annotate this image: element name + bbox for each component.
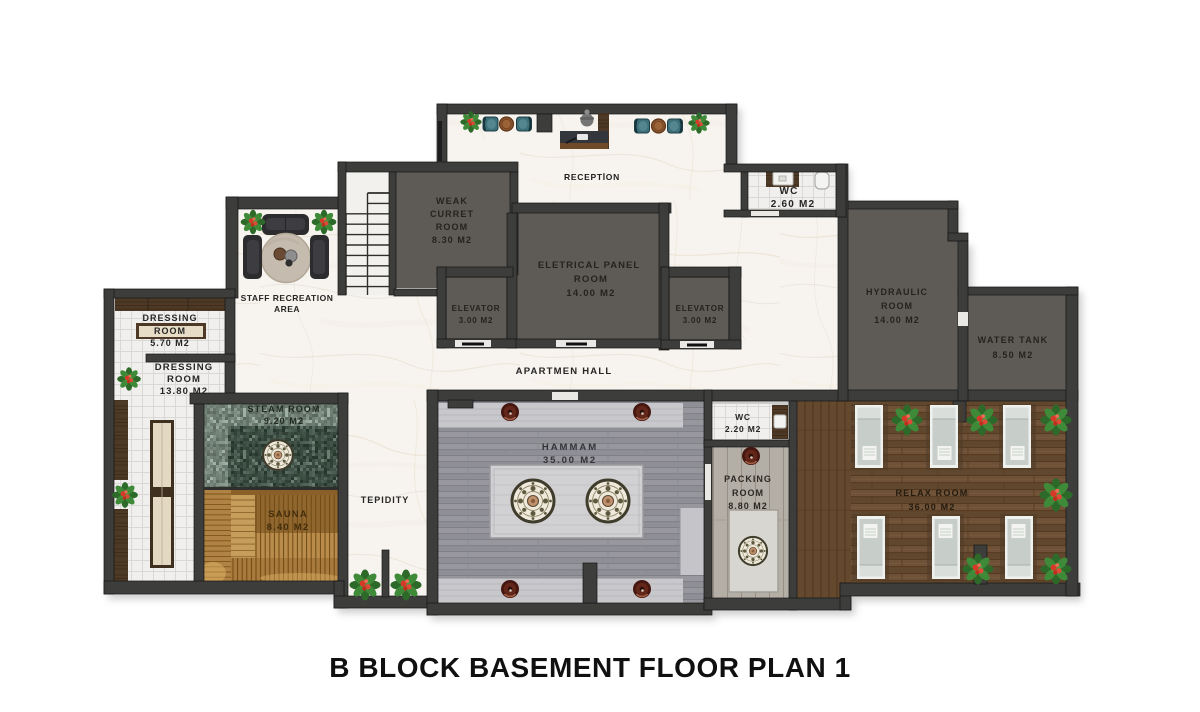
svg-text:RELAX ROOM: RELAX ROOM <box>895 488 968 498</box>
svg-text:8.30 M2: 8.30 M2 <box>432 235 472 245</box>
svg-text:HAMMAM: HAMMAM <box>542 442 598 453</box>
svg-text:WC: WC <box>735 412 751 422</box>
svg-text:5.70 M2: 5.70 M2 <box>150 338 190 348</box>
svg-text:8.40 M2: 8.40 M2 <box>267 522 310 533</box>
svg-text:9.20 M2: 9.20 M2 <box>264 416 304 426</box>
svg-text:35.00 M2: 35.00 M2 <box>543 455 597 466</box>
svg-text:2.60 M2: 2.60 M2 <box>771 199 816 210</box>
svg-text:ROOM: ROOM <box>881 301 913 311</box>
svg-text:ROOM: ROOM <box>167 374 201 385</box>
svg-text:13.80 M2: 13.80 M2 <box>160 386 208 397</box>
svg-text:WATER TANK: WATER TANK <box>978 335 1049 345</box>
svg-text:APARTMEN HALL: APARTMEN HALL <box>516 366 613 377</box>
svg-text:CURRET: CURRET <box>430 209 474 219</box>
svg-text:ELEVATOR: ELEVATOR <box>452 304 501 313</box>
svg-text:ROOM: ROOM <box>732 488 764 498</box>
svg-text:TEPIDITY: TEPIDITY <box>361 495 410 505</box>
svg-text:14.00 M2: 14.00 M2 <box>566 288 615 299</box>
svg-text:B BLOCK BASEMENT FLOOR PLAN 1: B BLOCK BASEMENT FLOOR PLAN 1 <box>329 652 851 683</box>
svg-text:WEAK: WEAK <box>436 196 468 206</box>
svg-text:14.00 M2: 14.00 M2 <box>874 315 920 325</box>
svg-text:ELETRICAL PANEL: ELETRICAL PANEL <box>538 260 640 271</box>
svg-text:WC: WC <box>779 186 798 197</box>
svg-text:8.50 M2: 8.50 M2 <box>993 350 1034 360</box>
svg-text:36.00 M2: 36.00 M2 <box>908 502 955 512</box>
svg-text:HYDRAULIC: HYDRAULIC <box>866 287 928 297</box>
svg-text:8.80 M2: 8.80 M2 <box>728 501 768 511</box>
svg-text:STAFF RECREATION: STAFF RECREATION <box>241 293 334 303</box>
svg-text:SAUNA: SAUNA <box>268 509 308 520</box>
svg-text:DRESSING: DRESSING <box>142 313 197 323</box>
svg-text:ROOM: ROOM <box>574 274 608 285</box>
svg-text:STEAM ROOM: STEAM ROOM <box>248 404 321 414</box>
svg-text:PACKING: PACKING <box>724 474 772 484</box>
svg-text:ELEVATOR: ELEVATOR <box>676 304 725 313</box>
svg-text:3.00 M2: 3.00 M2 <box>459 316 494 325</box>
svg-text:3.00 M2: 3.00 M2 <box>683 316 718 325</box>
svg-text:ROOM: ROOM <box>436 222 468 232</box>
svg-text:ROOM: ROOM <box>154 326 186 336</box>
svg-text:AREA: AREA <box>274 304 300 314</box>
svg-text:2.20 M2: 2.20 M2 <box>725 424 761 434</box>
svg-text:RECEPTİON: RECEPTİON <box>564 172 620 182</box>
svg-text:DRESSING: DRESSING <box>155 362 213 373</box>
